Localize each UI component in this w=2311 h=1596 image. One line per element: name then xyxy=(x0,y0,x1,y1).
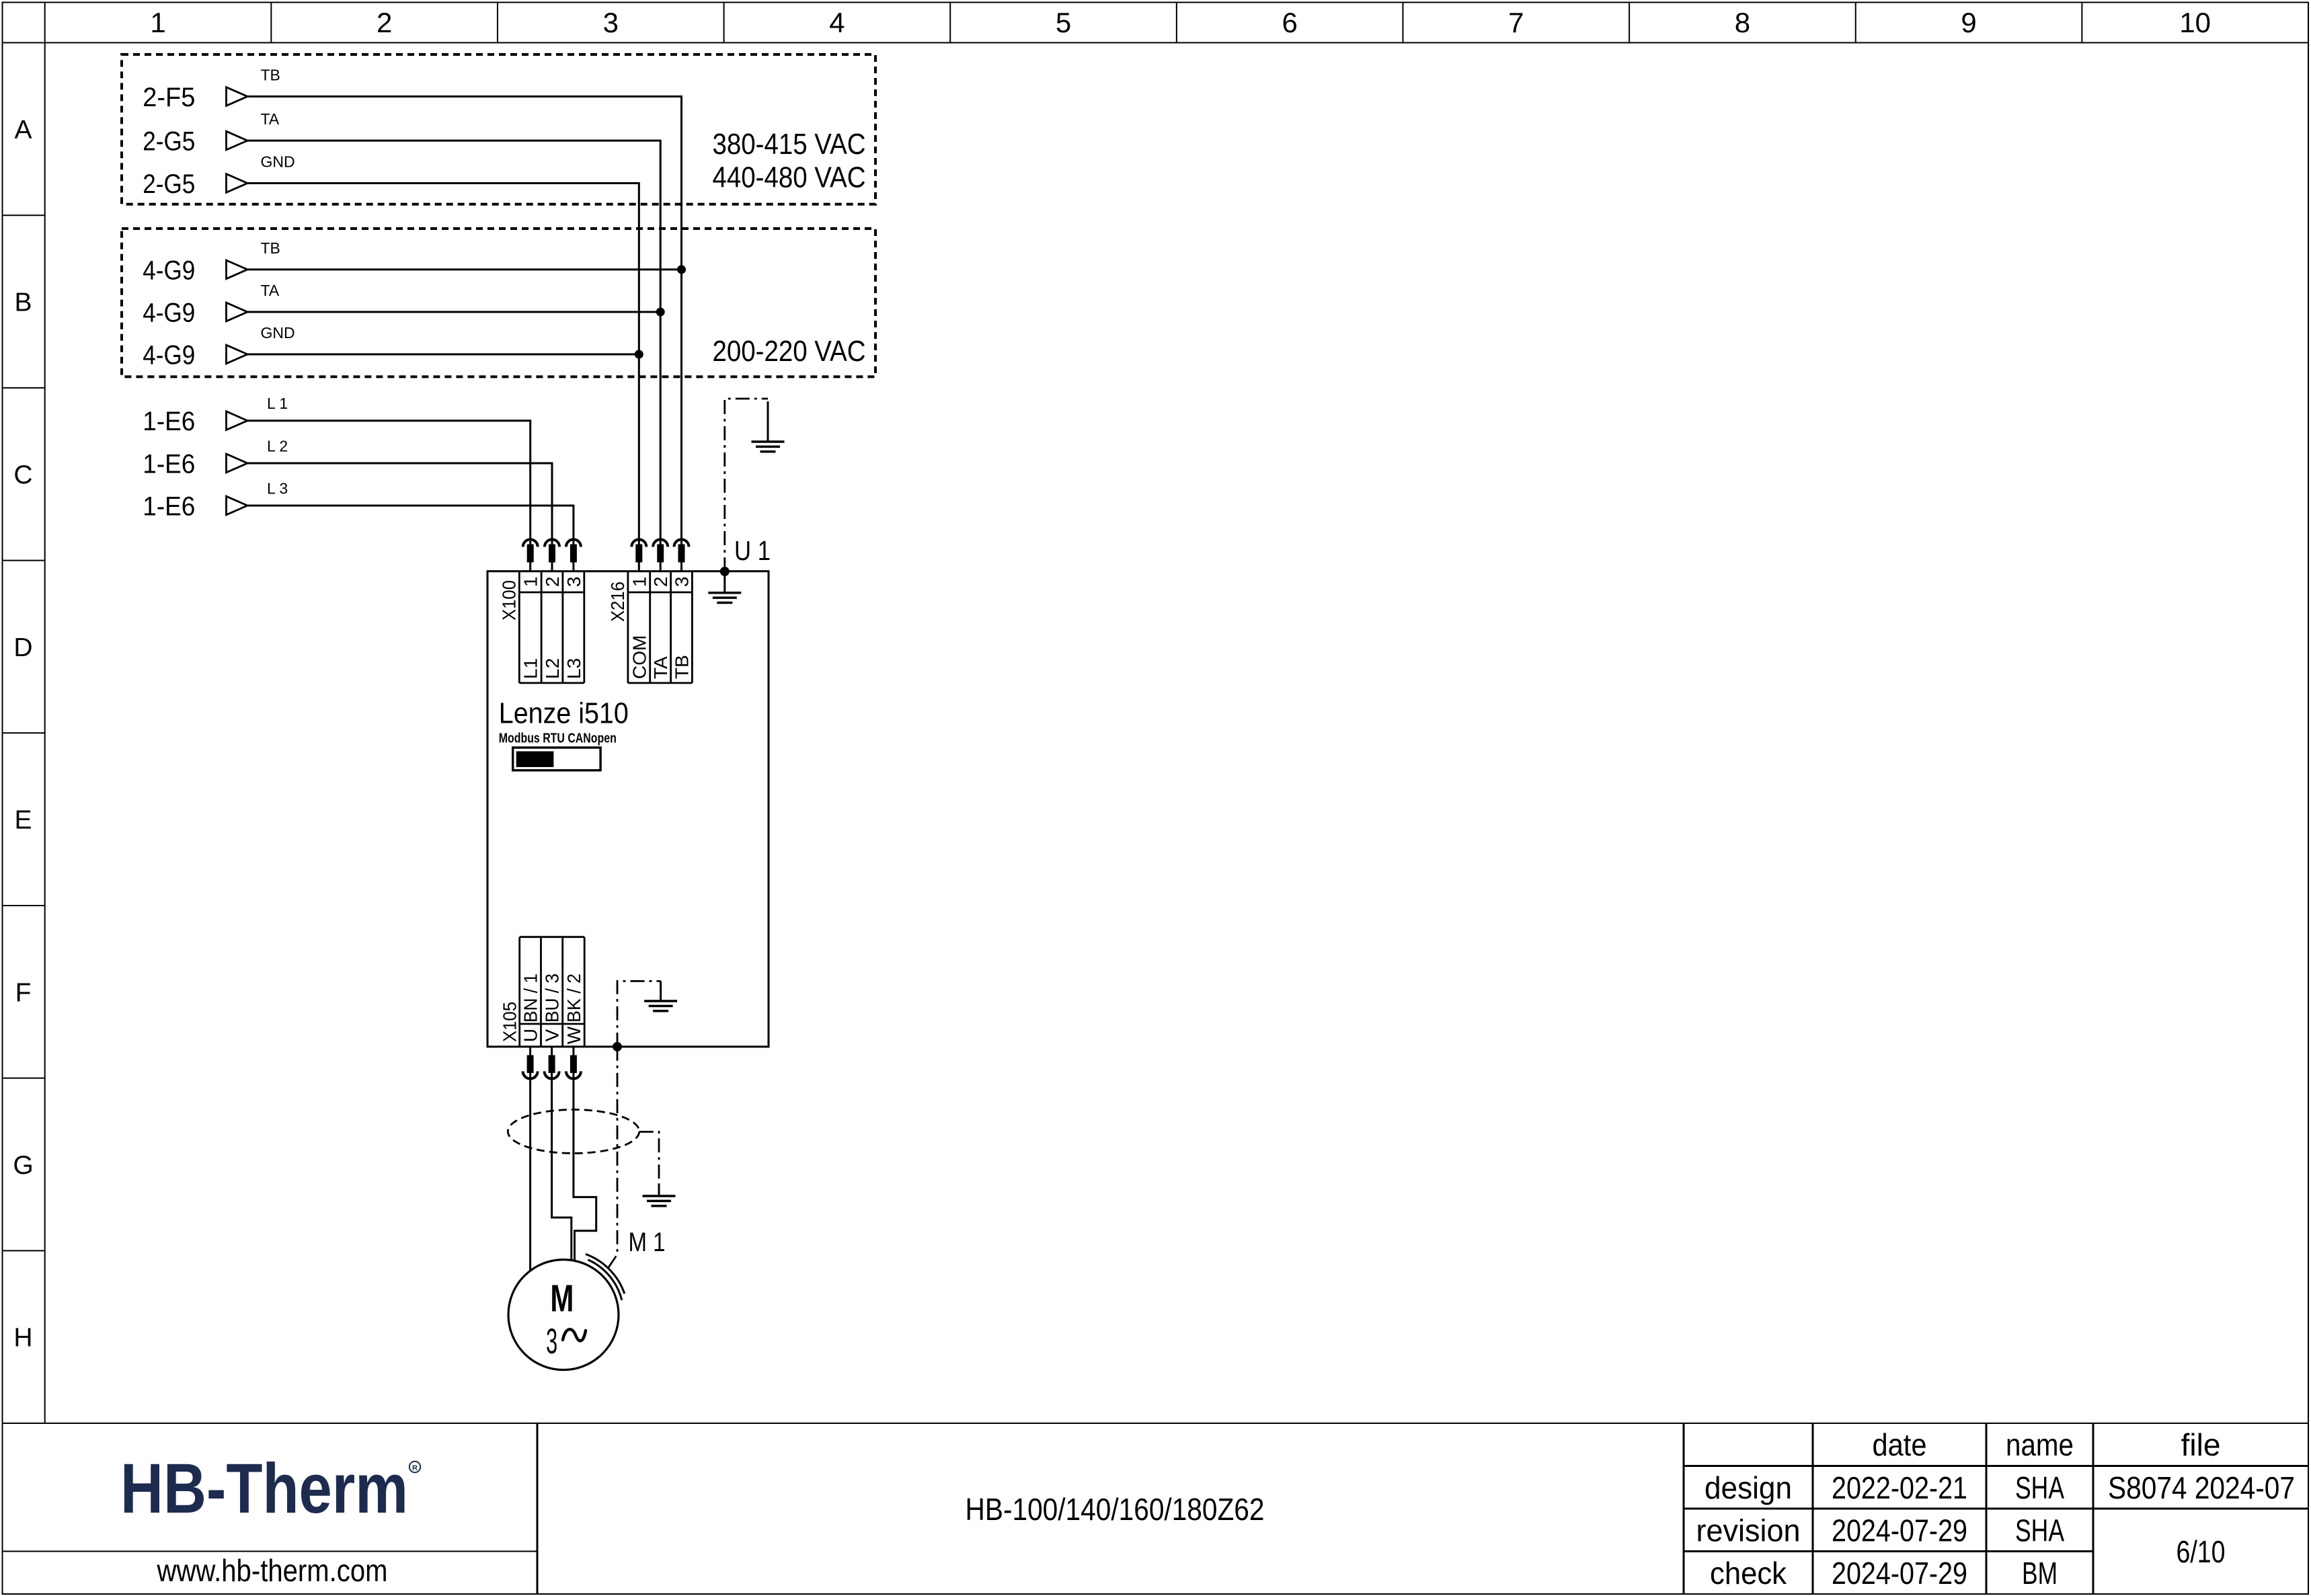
svg-text:3: 3 xyxy=(563,577,584,588)
svg-text:date: date xyxy=(1873,1427,1927,1462)
svg-text:W: W xyxy=(563,1026,584,1044)
svg-text:R: R xyxy=(412,1464,418,1472)
svg-text:Lenze i510: Lenze i510 xyxy=(499,697,629,730)
svg-text:L1: L1 xyxy=(520,658,541,679)
svg-text:6: 6 xyxy=(1282,7,1297,38)
svg-text:X216: X216 xyxy=(607,582,628,622)
svg-text:SHA: SHA xyxy=(2015,1470,2064,1505)
svg-text:380-415 VAC: 380-415 VAC xyxy=(713,128,866,161)
svg-text:TB: TB xyxy=(261,67,280,84)
svg-text:BK / 2: BK / 2 xyxy=(563,973,584,1023)
svg-text:2022-02-21: 2022-02-21 xyxy=(1832,1470,1967,1505)
svg-text:200-220 VAC: 200-220 VAC xyxy=(713,335,866,368)
svg-text:L2: L2 xyxy=(542,658,563,679)
svg-text:COM: COM xyxy=(629,635,650,679)
svg-text:6/10: 6/10 xyxy=(2177,1534,2226,1569)
svg-text:1: 1 xyxy=(520,577,541,588)
svg-text:440-480 VAC: 440-480 VAC xyxy=(713,161,866,194)
svg-text:GND: GND xyxy=(261,324,295,342)
svg-text:check: check xyxy=(1710,1556,1787,1591)
svg-text:2: 2 xyxy=(377,7,392,38)
svg-text:G: G xyxy=(13,1151,33,1180)
svg-text:4-G9: 4-G9 xyxy=(143,255,195,285)
svg-text:H: H xyxy=(13,1324,32,1353)
svg-text:3: 3 xyxy=(546,1322,557,1361)
svg-text:GND: GND xyxy=(261,153,295,171)
svg-text:HB-100/140/160/180Z62: HB-100/140/160/180Z62 xyxy=(966,1492,1265,1527)
svg-text:D: D xyxy=(13,633,32,662)
svg-text:2024-07-29: 2024-07-29 xyxy=(1832,1556,1967,1591)
svg-text:design: design xyxy=(1705,1470,1792,1505)
svg-text:1-E6: 1-E6 xyxy=(143,491,195,521)
svg-text:BU / 3: BU / 3 xyxy=(542,973,563,1023)
svg-text:4-G9: 4-G9 xyxy=(143,298,195,327)
svg-text:L 3: L 3 xyxy=(267,480,288,497)
svg-text:2: 2 xyxy=(542,577,563,588)
svg-text:1: 1 xyxy=(150,7,165,38)
svg-text:1: 1 xyxy=(629,577,650,588)
svg-text:X100: X100 xyxy=(499,580,520,621)
svg-text:2-G5: 2-G5 xyxy=(143,127,195,157)
svg-text:E: E xyxy=(14,806,32,835)
svg-text:3: 3 xyxy=(672,577,693,588)
svg-text:L 2: L 2 xyxy=(267,438,288,455)
svg-text:BN / 1: BN / 1 xyxy=(520,973,541,1023)
svg-text:www.hb-therm.com: www.hb-therm.com xyxy=(157,1553,388,1588)
svg-text:A: A xyxy=(14,116,32,145)
svg-text:1-E6: 1-E6 xyxy=(143,407,195,436)
svg-text:U 1: U 1 xyxy=(734,535,771,566)
svg-text:L 1: L 1 xyxy=(267,395,288,412)
svg-text:TB: TB xyxy=(672,655,693,679)
svg-text:2-F5: 2-F5 xyxy=(143,83,195,112)
svg-text:Modbus RTU CANopen: Modbus RTU CANopen xyxy=(499,731,617,746)
svg-text:C: C xyxy=(13,461,32,489)
svg-text:HB-Therm: HB-Therm xyxy=(120,1449,408,1528)
svg-text:BM: BM xyxy=(2022,1556,2058,1591)
svg-text:2024-07-29: 2024-07-29 xyxy=(1832,1513,1967,1548)
svg-text:M 1: M 1 xyxy=(629,1228,666,1257)
svg-text:TB: TB xyxy=(261,239,280,257)
svg-text:TA: TA xyxy=(261,282,280,299)
svg-text:2: 2 xyxy=(650,577,671,588)
svg-text:M: M xyxy=(550,1277,574,1320)
svg-text:1-E6: 1-E6 xyxy=(143,449,195,479)
svg-text:name: name xyxy=(2006,1427,2074,1462)
svg-text:TA: TA xyxy=(261,110,280,128)
svg-text:U: U xyxy=(520,1029,541,1042)
svg-text:8: 8 xyxy=(1735,7,1750,38)
svg-text:file: file xyxy=(2181,1427,2221,1462)
svg-text:L3: L3 xyxy=(563,658,584,679)
svg-text:SHA: SHA xyxy=(2015,1513,2064,1548)
svg-text:5: 5 xyxy=(1056,7,1071,38)
svg-text:10: 10 xyxy=(2179,7,2211,38)
svg-text:9: 9 xyxy=(1961,7,1976,38)
svg-text:TA: TA xyxy=(650,656,671,679)
svg-text:revision: revision xyxy=(1696,1513,1801,1548)
svg-text:4: 4 xyxy=(829,7,845,38)
svg-text:3: 3 xyxy=(603,7,619,38)
svg-text:2-G5: 2-G5 xyxy=(143,169,195,199)
svg-text:X105: X105 xyxy=(500,1002,520,1042)
svg-text:7: 7 xyxy=(1508,7,1524,38)
svg-text:F: F xyxy=(15,978,32,1007)
svg-text:V: V xyxy=(542,1029,563,1041)
svg-text:S8074 2024-07: S8074 2024-07 xyxy=(2108,1470,2295,1505)
svg-text:4-G9: 4-G9 xyxy=(143,340,195,370)
svg-text:B: B xyxy=(14,288,32,317)
